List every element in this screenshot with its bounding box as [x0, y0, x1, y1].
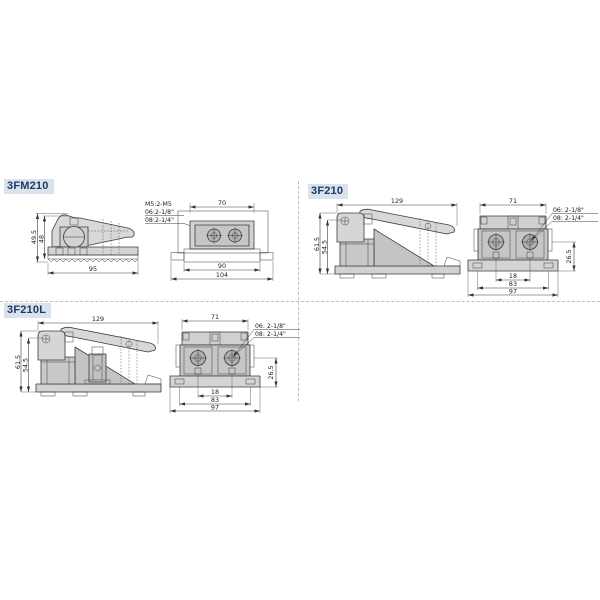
3fm210-mount-tab-right [260, 253, 273, 261]
dim-3fm210-top-104: 104 [216, 271, 228, 279]
3f210l-guard [38, 331, 65, 360]
note-3fm210-m5: M5:2-M5 [145, 201, 172, 208]
dim-3f210l-front-26-5: 26.5 [267, 365, 275, 379]
3f210-wedge [374, 229, 434, 266]
3f210l-flange [170, 376, 260, 387]
3f210l-guard-screw [42, 335, 50, 343]
3f210-valve-block [340, 239, 374, 266]
3fm210-top-shape [171, 211, 273, 262]
dim-3f210-height-54-5: 54.5 [321, 240, 329, 254]
3fm210-side-view: 49.5 48 95 [28, 203, 153, 291]
dim-3f210l-front-71: 71 [211, 313, 219, 321]
3f210l-base-plate [36, 384, 161, 392]
dim-3fm210-top-90: 90 [218, 262, 226, 270]
dim-3f210-front-71: 71 [509, 197, 517, 205]
3f210-base-plate [335, 266, 460, 274]
note-3f210l-08: 08: 2-1/4" [255, 331, 286, 338]
section-divider-horizontal [0, 301, 600, 302]
3fm210-side-shape [48, 215, 138, 262]
dim-3f210-front-18: 18 [509, 272, 517, 280]
3f210-front-shape [468, 216, 558, 271]
3f210l-latch-mechanism [85, 347, 110, 384]
3fm210-mount-base [184, 249, 260, 262]
3f210-guard-screw [341, 217, 349, 225]
dim-3f210l-front-97: 97 [211, 404, 219, 412]
dim-3f210-front-26-5: 26.5 [565, 249, 573, 263]
3f210l-front-view: 06: 2-1/8" 08: 2-1/4" 71 26.5 18 83 97 [162, 312, 302, 414]
dim-3f210l-front-18: 18 [211, 388, 219, 396]
dim-3f210-front-97: 97 [509, 288, 517, 296]
3fm210-top-view: M5:2-M5 06:2-1/8" 08:2-1/4" [138, 196, 300, 288]
dim-3f210-width-129: 129 [391, 197, 403, 205]
dim-3fm210-top-70: 70 [218, 199, 226, 207]
3f210-guard [337, 213, 364, 242]
note-3fm210-06: 06:2-1/8" [145, 209, 174, 216]
dim-3fm210-height-48: 48 [38, 235, 46, 243]
3f210-front-view: 06: 2-1/8" 08: 2-1/4" 71 26.5 18 83 97 [460, 196, 600, 298]
dim-3f210l-width-129: 129 [92, 315, 104, 323]
note-3f210-06: 06: 2-1/8" [553, 207, 584, 214]
model-label-3fm210: 3FM210 [4, 179, 54, 194]
dim-3fm210-width-95: 95 [89, 265, 97, 273]
3f210l-valve-block [41, 357, 75, 384]
3f210-side-shape [335, 209, 460, 278]
3f210l-front-shape [170, 332, 260, 387]
note-3fm210-08: 08:2-1/4" [145, 217, 174, 224]
3fm210-serrated-tread [48, 259, 138, 262]
note-3f210l-06: 06: 2-1/8" [255, 323, 286, 330]
3f210l-side-shape [36, 327, 161, 396]
3f210-side-view: 129 61.5 54.5 [312, 196, 464, 288]
note-3f210-08: 08: 2-1/4" [553, 215, 584, 222]
dim-3f210l-height-54-5: 54.5 [22, 358, 30, 372]
3f210-flange [468, 260, 558, 271]
3f210l-side-view: 129 61.5 54.5 [13, 314, 165, 406]
3fm210-mount-tab-left [171, 253, 184, 261]
catalog-drawing-page: 3FM210 [0, 0, 600, 600]
